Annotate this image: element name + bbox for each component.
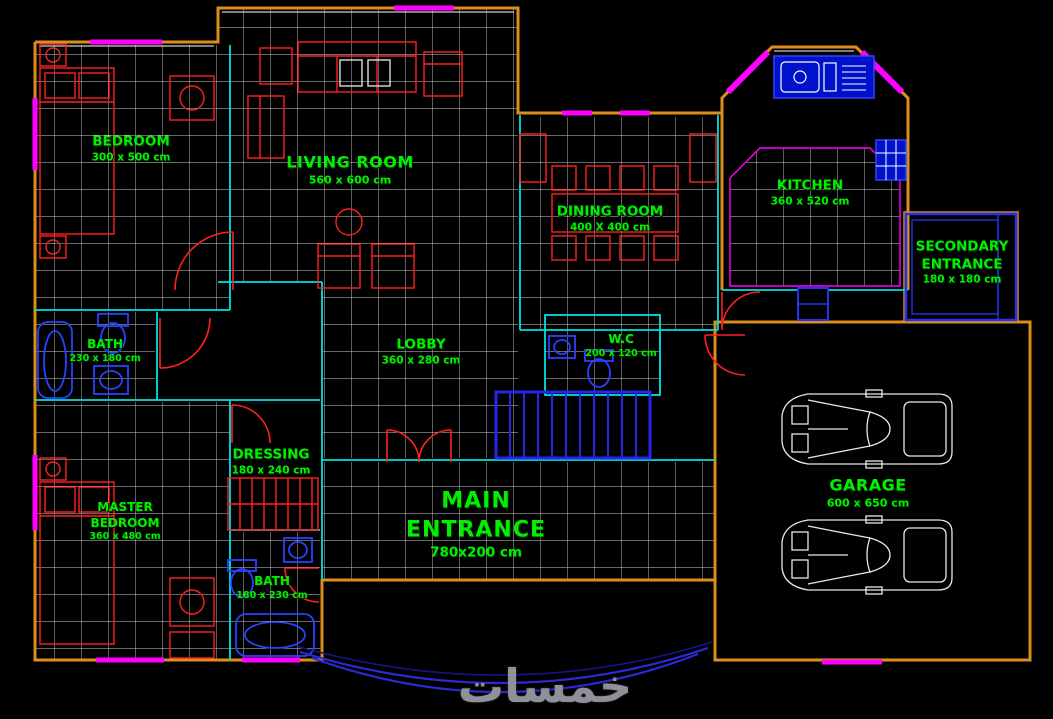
secondary-entrance-frame	[906, 214, 1016, 320]
entrance-step-arcs	[296, 642, 712, 692]
garage-cars	[782, 390, 952, 594]
floor-plan-canvas: BEDROOM 300 x 500 cm LIVING ROOM 560 x 6…	[0, 0, 1053, 719]
stairs	[496, 392, 650, 458]
dressing-wardrobe	[228, 478, 318, 530]
tile-grids	[35, 8, 900, 660]
floor-plan-drawing	[0, 0, 1053, 719]
